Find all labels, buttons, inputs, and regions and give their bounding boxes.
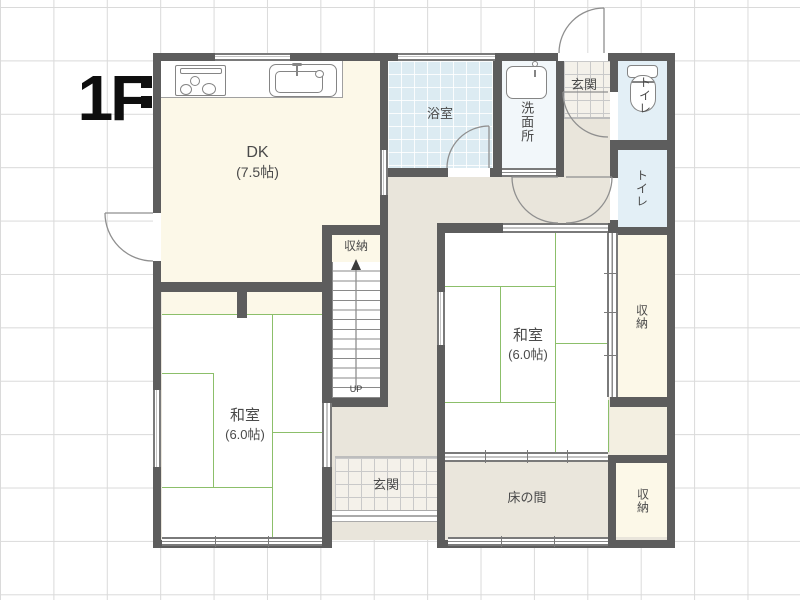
room-label-entrance-lower: 玄関 (360, 477, 412, 493)
kitchen-drain (315, 70, 324, 78)
tatami-line (162, 373, 213, 374)
wall-closet-mid-south (608, 455, 675, 463)
dk-name: DK (246, 144, 268, 161)
stove-grill (180, 68, 222, 74)
wall-closet-east-south (610, 397, 675, 407)
sliding-door-washitsu-east-north (503, 223, 608, 233)
room-label-tokonoma: 床の間 (487, 489, 567, 507)
sliding-tick (567, 450, 568, 463)
tatami-line (162, 487, 272, 488)
room-label-washitsu-east: 和室(6.0帖) (467, 325, 589, 367)
washitsu-east-name: 和室 (513, 327, 543, 344)
vent-tick (141, 76, 152, 88)
washitsu-west-name: 和室 (230, 407, 260, 424)
room-label-toilet-upper: トイレ (635, 67, 653, 123)
room-label-closet-southeast: 収納 (633, 478, 651, 524)
fusuma-tick (604, 312, 618, 313)
floor-plan-canvas: 1F (0, 0, 800, 600)
fusuma-tick (604, 355, 618, 356)
window-tick (268, 536, 269, 547)
fusuma-closet-east (607, 233, 618, 397)
kitchen-faucet-head (292, 63, 302, 66)
room-label-washroom: 洗面所 (516, 90, 536, 154)
stove-burner (180, 84, 192, 95)
stove-burner (202, 83, 216, 95)
stairs-up-label: UP (342, 384, 370, 396)
wall-toilet-divider (610, 140, 675, 150)
washitsu-west-size: (6.0帖) (225, 427, 265, 442)
window-tokonoma-south (448, 537, 608, 546)
room-label-closet-by-stairs: 収納 (330, 239, 382, 254)
washitsu-east-size: (6.0帖) (508, 347, 548, 362)
door-arc-entrance-upper (559, 8, 604, 53)
wall-stairs-north (322, 225, 388, 235)
door-opening-dk-west (153, 213, 161, 261)
room-label-washitsu-west: 和室(6.0帖) (184, 405, 306, 447)
window-dk-north (215, 53, 290, 61)
washbasin-faucet-dot (532, 61, 538, 67)
washbasin-faucet-line (534, 70, 536, 77)
wall-outer-left (153, 53, 161, 548)
staircase (332, 262, 382, 398)
entrance-lower-edge-line (335, 456, 437, 458)
window-bath-north (398, 53, 495, 61)
door-arc-dk-west (105, 213, 153, 261)
room-label-dk: DK(7.5帖) (195, 140, 320, 186)
entrance-upper-step-line (564, 117, 610, 119)
window-tick (215, 536, 216, 547)
room-label-bathroom: 浴室 (405, 105, 475, 123)
vent-tick (141, 96, 152, 108)
sliding-door-washitsu-east-west (437, 292, 445, 345)
sliding-tick (485, 450, 486, 463)
wall-toilet-closet-divider (610, 227, 675, 235)
door-opening-bath (448, 168, 490, 177)
room-closet-mid-east (610, 407, 667, 455)
sliding-tick (527, 450, 528, 463)
wall-closet-strip-stub (237, 292, 247, 318)
sliding-door-washitsu-west-east (322, 403, 332, 467)
porch-step-2 (331, 516, 441, 522)
wall-stairs-west (322, 225, 332, 540)
wall-tokonoma-closet (608, 455, 616, 540)
tatami-line (445, 402, 555, 403)
window-washitsu-west-wall (153, 390, 161, 467)
wall-washitsu-east-west-side (437, 223, 445, 540)
window-washitsu-west-south (162, 537, 322, 546)
room-label-toilet-lower: トイレ (632, 158, 650, 218)
door-opening-toilet-upper (610, 92, 618, 140)
room-label-closet-east: 収納 (632, 295, 650, 339)
door-opening-entrance-upper (558, 53, 608, 61)
window-tick (554, 536, 555, 547)
fusuma-tick (604, 273, 618, 274)
dk-size: (7.5帖) (236, 164, 279, 180)
wall-outer-right (667, 53, 675, 548)
wall-bath-washroom (493, 61, 502, 168)
room-label-entrance-upper: 玄関 (560, 77, 608, 93)
sliding-door-washroom-south (502, 168, 556, 177)
stove-burner (190, 76, 200, 86)
window-tick (501, 536, 502, 547)
door-opening-toilet-lower (610, 178, 618, 220)
tatami-line (608, 400, 609, 452)
sliding-door-dk-east (380, 150, 388, 195)
wall-dk-south (153, 282, 332, 292)
